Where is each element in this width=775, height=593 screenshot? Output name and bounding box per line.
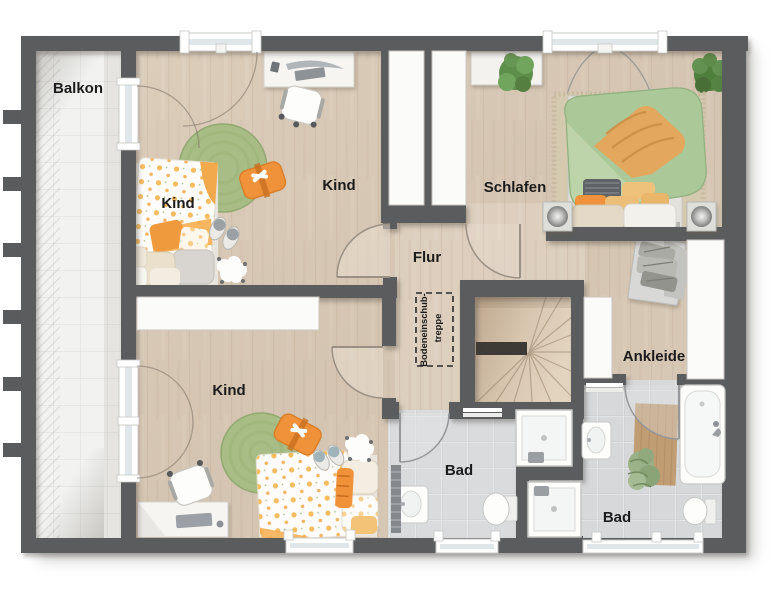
svg-text:Schlafen: Schlafen: [484, 179, 547, 196]
svg-text:Bad: Bad: [603, 509, 631, 526]
svg-text:Flur: Flur: [413, 249, 441, 266]
svg-text:Kind: Kind: [212, 382, 245, 399]
svg-text:Bad: Bad: [445, 462, 473, 479]
svg-text:Balkon: Balkon: [53, 80, 103, 97]
svg-text:Ankleide: Ankleide: [623, 348, 686, 365]
svg-text:Bodeneinschub-: Bodeneinschub-: [418, 293, 429, 366]
svg-text:treppe: treppe: [432, 314, 443, 343]
svg-text:Kind: Kind: [161, 195, 194, 212]
svg-text:Kind: Kind: [322, 177, 355, 194]
